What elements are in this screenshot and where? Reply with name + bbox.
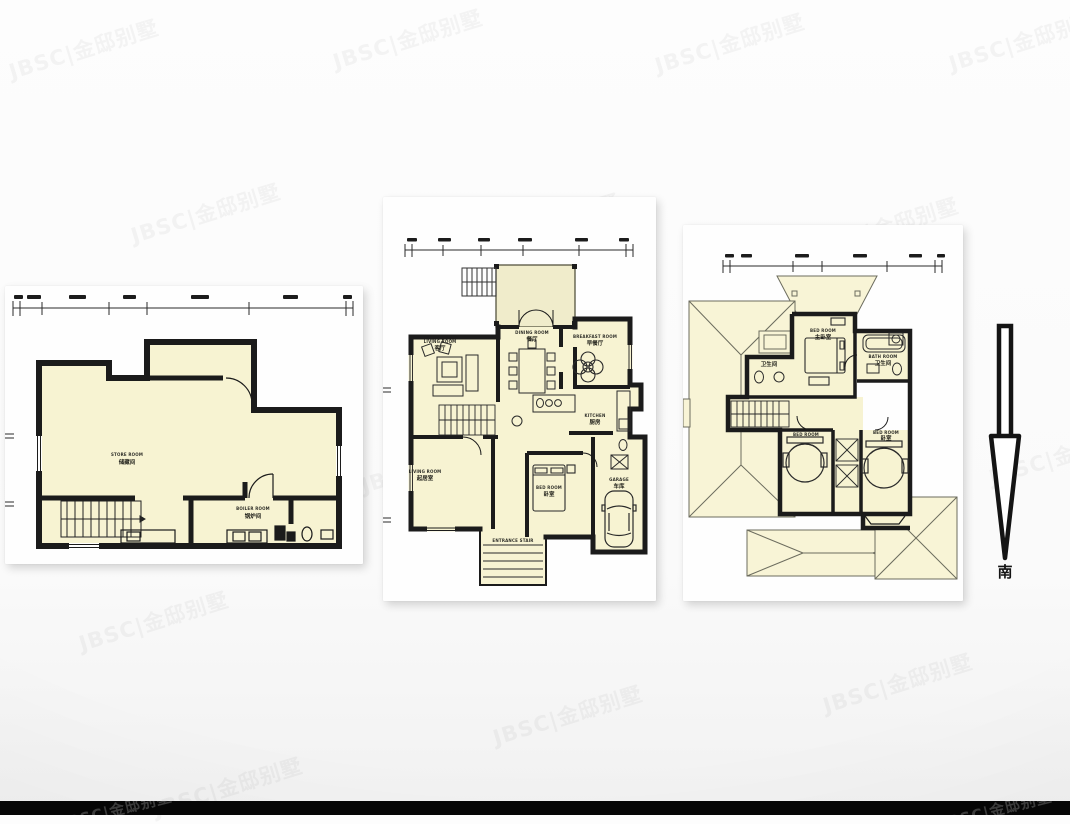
garage-label-zh: 车库	[613, 482, 625, 490]
dimension-line	[723, 260, 942, 273]
store-room-label-en: STORE ROOM	[111, 452, 143, 457]
master-bedroom-label-zh: 主卧室	[815, 333, 832, 341]
compass-arrow	[985, 320, 1025, 588]
south-arrow-icon	[985, 320, 1025, 565]
second-floor-plan-card: BED ROOM 主卧室 BATH ROOM 卫生间 卫生间 BED ROOM …	[683, 225, 963, 601]
bottom-bar: JBSC|金邸别墅 JBSC|金邸别墅	[0, 801, 1070, 815]
sitting-room-label-en: LIVING ROOM	[409, 469, 442, 474]
bathroom-label-en: BATH ROOM	[869, 354, 898, 359]
first-floor-plan-card: LIVING ROOM 客厅 DINING ROOM 餐厅 BREAKFAST …	[383, 197, 656, 601]
bedroom1-label-en: BED ROOM	[793, 432, 819, 437]
watermark: JBSC|金邸别墅	[59, 801, 174, 815]
garage-label-en: GARAGE	[609, 477, 629, 482]
dining-room-label-en: DINING ROOM	[515, 330, 549, 335]
small-bath-label-zh: 卫生间	[761, 360, 778, 368]
watermark: JBSC|金邸别墅	[5, 12, 162, 86]
bathroom-label-zh: 卫生间	[875, 359, 892, 367]
master-bedroom-label-en: BED ROOM	[810, 328, 836, 333]
edge-ticks	[383, 388, 391, 522]
watermark: JBSC|金邸别墅	[819, 646, 976, 720]
watermark: JBSC|金邸别墅	[489, 678, 646, 752]
watermark: JBSC|金邸别墅	[75, 584, 232, 658]
breakfast-room-label-en: BREAKFAST ROOM	[573, 334, 617, 339]
dimension-numbers	[407, 238, 629, 242]
dimension-numbers	[725, 254, 945, 258]
sitting-room-label-zh: 起居室	[416, 474, 434, 482]
basement-plan-card: STORE ROOM 储藏间 BOILER ROOM 锅炉间	[5, 286, 363, 564]
boiler-room-label-en: BOILER ROOM	[236, 506, 270, 511]
dining-room-label-zh: 餐厅	[525, 335, 538, 343]
watermark: JBSC|金邸别墅	[127, 176, 284, 250]
watermark: JBSC|金邸别墅	[651, 6, 808, 80]
kitchen-label-zh: 厨房	[589, 418, 601, 426]
edge-ticks	[5, 434, 14, 506]
watermark: JBSC|金邸别墅	[939, 801, 1054, 815]
dimension-line	[405, 244, 633, 257]
bedroom-label-en: BED ROOM	[536, 485, 562, 490]
basement-plan-drawing: STORE ROOM 储藏间 BOILER ROOM 锅炉间	[5, 286, 363, 564]
bedroom2-label-en: BED ROOM	[873, 430, 899, 435]
second-floor-plan-drawing: BED ROOM 主卧室 BATH ROOM 卫生间 卫生间 BED ROOM …	[683, 225, 963, 601]
first-floor-plan-drawing: LIVING ROOM 客厅 DINING ROOM 餐厅 BREAKFAST …	[383, 197, 656, 601]
terrace	[494, 264, 577, 327]
bedroom2-label-zh: 卧室	[880, 434, 892, 442]
entrance-label-en: ENTRANCE STAIR	[492, 538, 533, 543]
kitchen-label-en: KITCHEN	[584, 413, 605, 418]
page: { "watermark": { "text": "JBSC|金邸别墅" }, …	[0, 0, 1070, 815]
dimension-numbers	[14, 295, 352, 299]
south-label: 南	[985, 561, 1025, 582]
boiler-room-label-zh: 锅炉间	[245, 512, 262, 520]
dimension-line	[13, 301, 353, 316]
bedroom-label-zh: 卧室	[543, 490, 555, 498]
terrace-stairs	[462, 268, 496, 296]
living-room-label-en: LIVING ROOM	[424, 339, 457, 344]
living-room-label-zh: 客厅	[433, 344, 446, 352]
breakfast-room-label-zh: 早餐厅	[587, 339, 604, 347]
watermark: JBSC|金邸别墅	[329, 2, 486, 76]
store-room-label-zh: 储藏间	[118, 458, 136, 466]
watermark: JBSC|金邸别墅	[945, 4, 1070, 78]
